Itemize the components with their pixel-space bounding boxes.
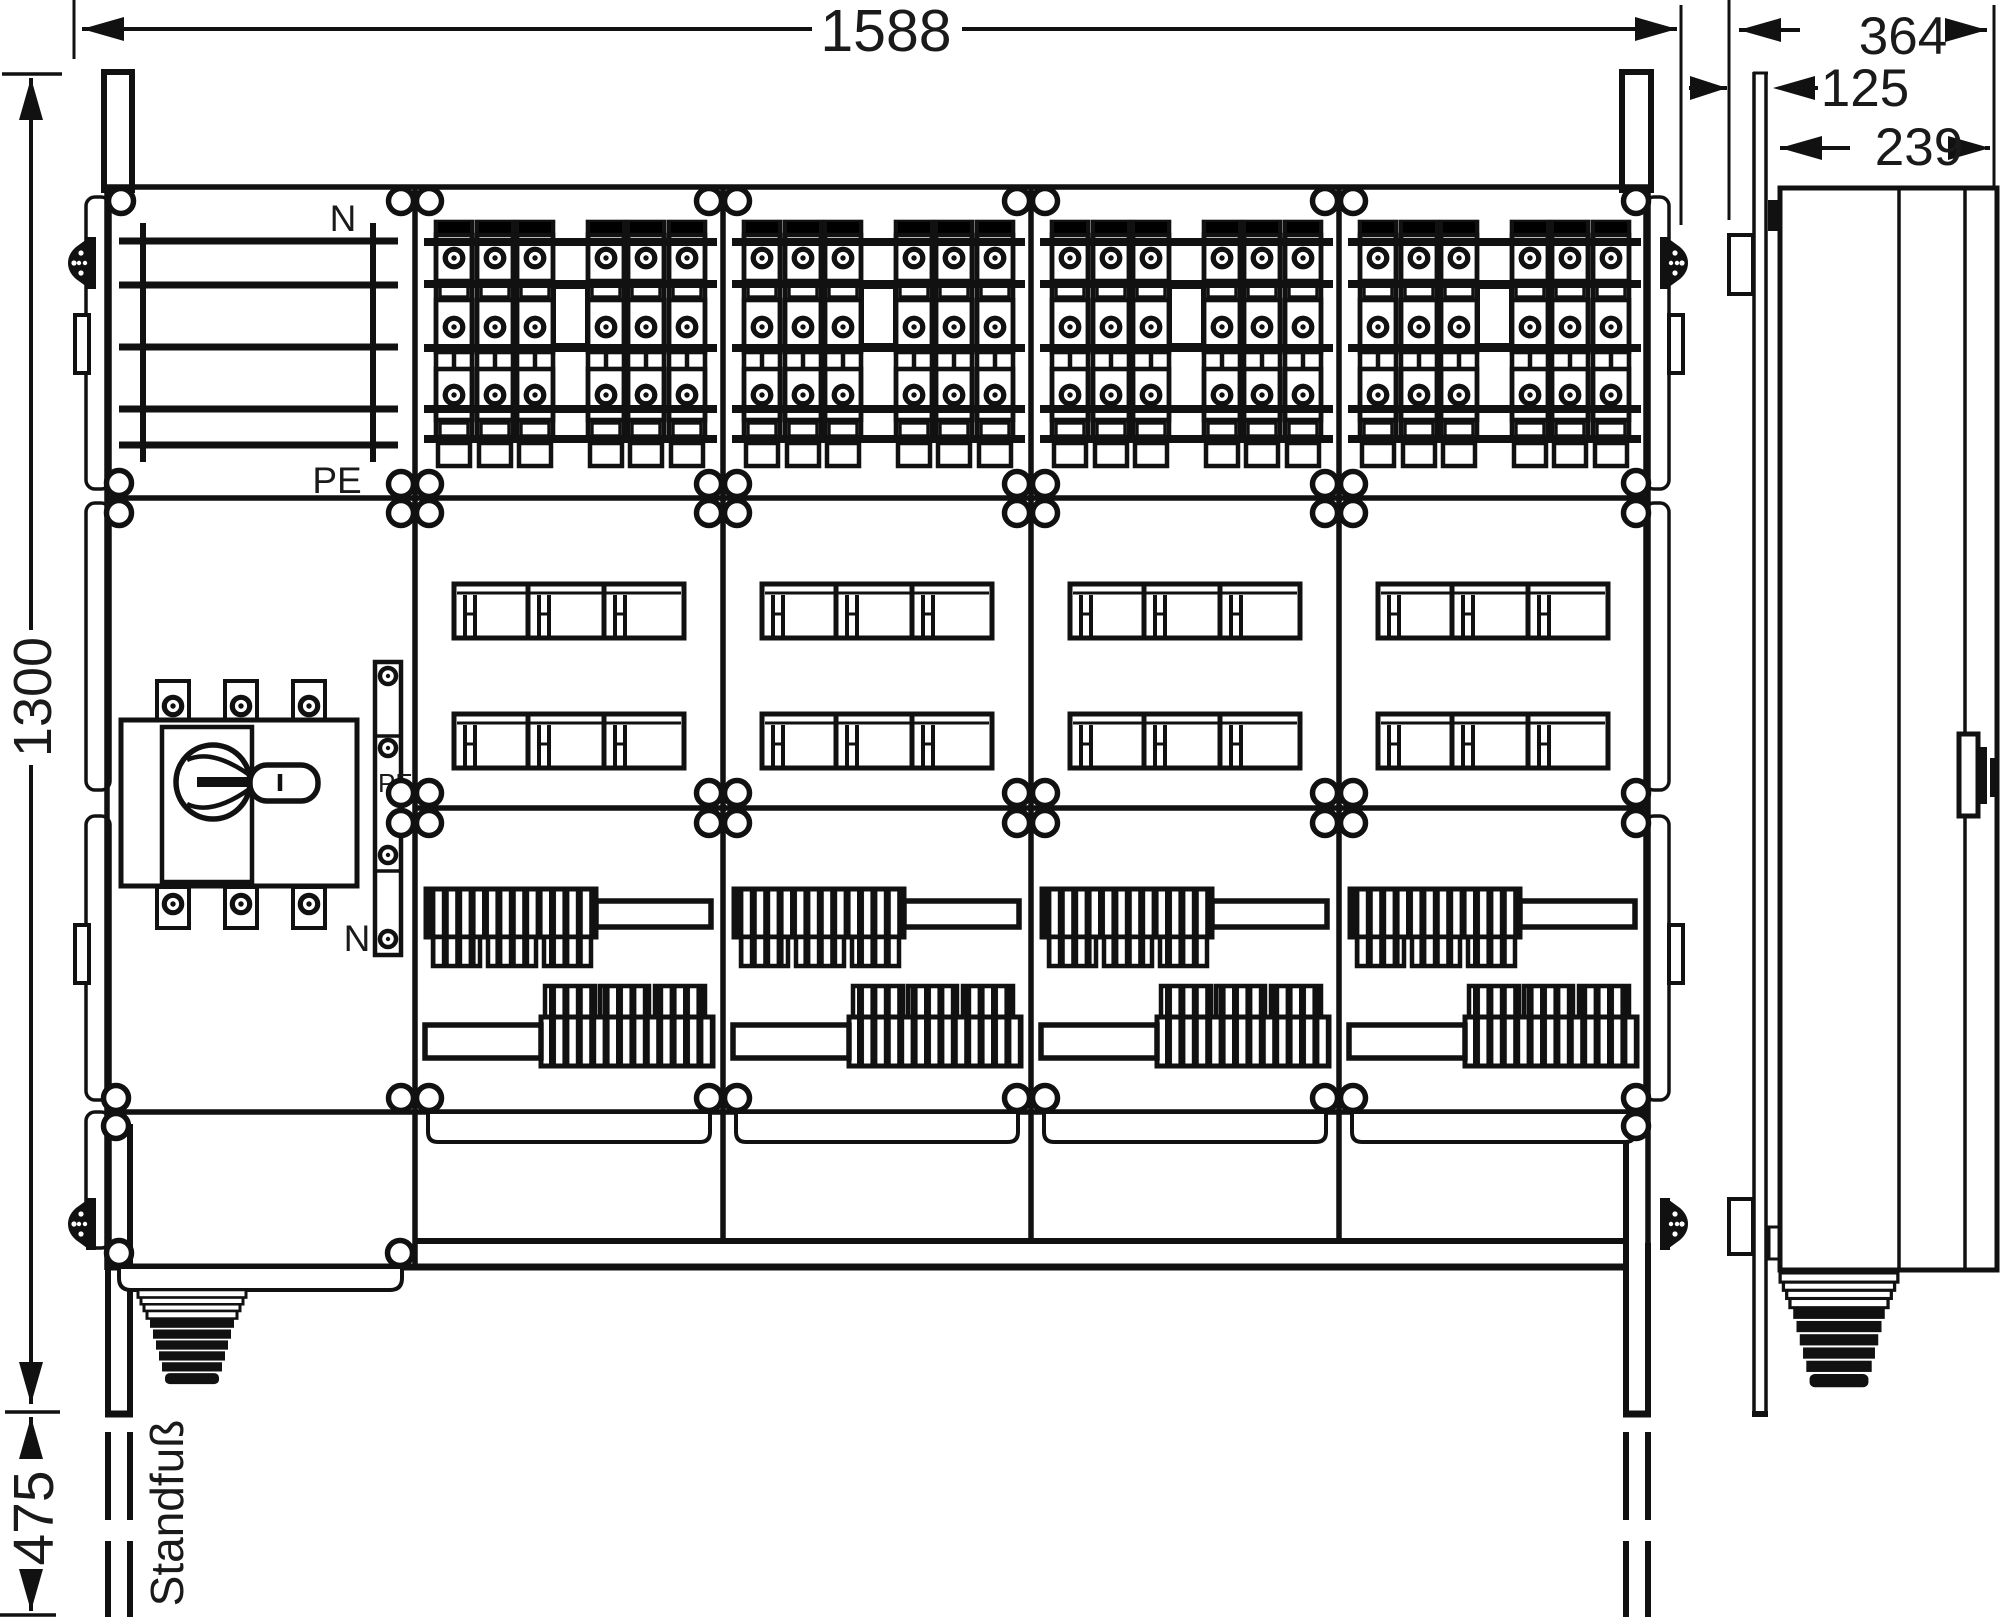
svg-text:1588: 1588 (820, 0, 951, 64)
svg-text:475: 475 (2, 1470, 66, 1565)
svg-text:1300: 1300 (3, 637, 63, 757)
svg-text:364: 364 (1859, 7, 1947, 66)
svg-text:125: 125 (1821, 59, 1909, 118)
svg-text:239: 239 (1875, 118, 1963, 177)
svg-text:Standfuß: Standfuß (141, 1420, 193, 1607)
svg-text:N: N (344, 918, 371, 959)
svg-text:N: N (330, 198, 357, 239)
svg-text:PE: PE (312, 460, 361, 501)
